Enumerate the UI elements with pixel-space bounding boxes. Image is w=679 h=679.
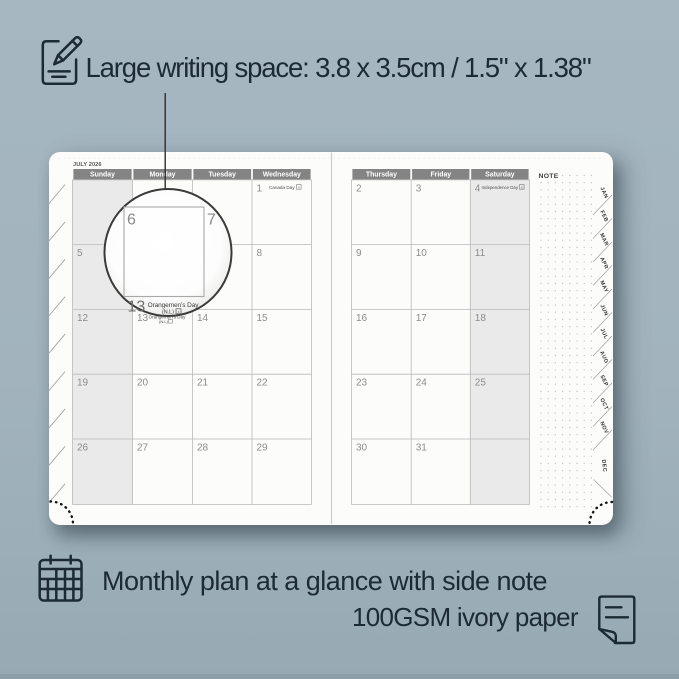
svg-text:31: 31 (416, 443, 428, 454)
svg-text:8: 8 (257, 248, 263, 259)
svg-text:Saturday: Saturday (485, 172, 515, 179)
svg-text:26: 26 (77, 443, 89, 454)
svg-text:13: 13 (128, 299, 146, 316)
svg-text:19: 19 (77, 378, 89, 389)
svg-text:30: 30 (356, 443, 368, 454)
svg-text:MAY: MAY (598, 280, 609, 294)
svg-text:Thursday: Thursday (366, 172, 397, 179)
svg-text:NOV: NOV (598, 421, 609, 435)
svg-text:22: 22 (257, 378, 269, 389)
svg-text:20: 20 (137, 378, 149, 389)
svg-text:Orangemen’s Day: Orangemen’s Day (148, 302, 200, 309)
svg-text:JAN: JAN (598, 186, 609, 199)
svg-text:25: 25 (475, 378, 487, 389)
svg-text:Sunday: Sunday (90, 172, 115, 179)
svg-text:x: x (178, 309, 180, 314)
svg-text:29: 29 (257, 443, 269, 454)
svg-text:2: 2 (356, 183, 362, 194)
svg-text:JUN: JUN (598, 304, 609, 317)
svg-text:14: 14 (197, 313, 209, 324)
svg-text:5: 5 (77, 248, 83, 259)
svg-text:21: 21 (197, 378, 209, 389)
svg-text:NOTE: NOTE (539, 173, 559, 180)
svg-text:JUL: JUL (599, 327, 609, 340)
svg-text:1: 1 (257, 183, 263, 194)
svg-text:28: 28 (197, 443, 209, 454)
svg-text:x: x (521, 186, 523, 190)
svg-text:12: 12 (77, 313, 89, 324)
svg-text:Wednesday: Wednesday (263, 172, 301, 179)
svg-text:JULY 2026: JULY 2026 (73, 162, 102, 168)
svg-text:MAR: MAR (598, 232, 609, 247)
svg-text:4: 4 (475, 183, 481, 194)
svg-text:Tuesday: Tuesday (208, 172, 236, 179)
svg-text:AUG: AUG (598, 350, 609, 364)
svg-text:Independence Day: Independence Day (482, 185, 519, 190)
svg-text:(N.L): (N.L) (159, 319, 169, 324)
svg-text:Monday: Monday (149, 172, 175, 179)
svg-text:APR: APR (598, 256, 609, 270)
svg-text:x: x (298, 186, 300, 190)
svg-text:16: 16 (356, 313, 368, 324)
svg-text:23: 23 (356, 378, 368, 389)
svg-text:17: 17 (416, 313, 428, 324)
svg-text:6: 6 (127, 212, 136, 229)
svg-text:10: 10 (416, 248, 428, 259)
svg-text:27: 27 (137, 443, 149, 454)
svg-text:24: 24 (416, 378, 428, 389)
svg-text:FEB: FEB (598, 210, 609, 223)
svg-text:7: 7 (207, 212, 216, 229)
svg-text:DEC: DEC (600, 459, 607, 472)
svg-text:Canada Day: Canada Day (269, 185, 295, 190)
svg-text:Friday: Friday (430, 172, 451, 179)
svg-text:9: 9 (356, 248, 362, 259)
svg-text:15: 15 (257, 313, 269, 324)
svg-text:3: 3 (416, 183, 422, 194)
svg-text:OCT: OCT (598, 397, 609, 411)
svg-text:SEP: SEP (598, 374, 609, 387)
svg-text:11: 11 (475, 248, 486, 259)
svg-text:18: 18 (475, 313, 487, 324)
